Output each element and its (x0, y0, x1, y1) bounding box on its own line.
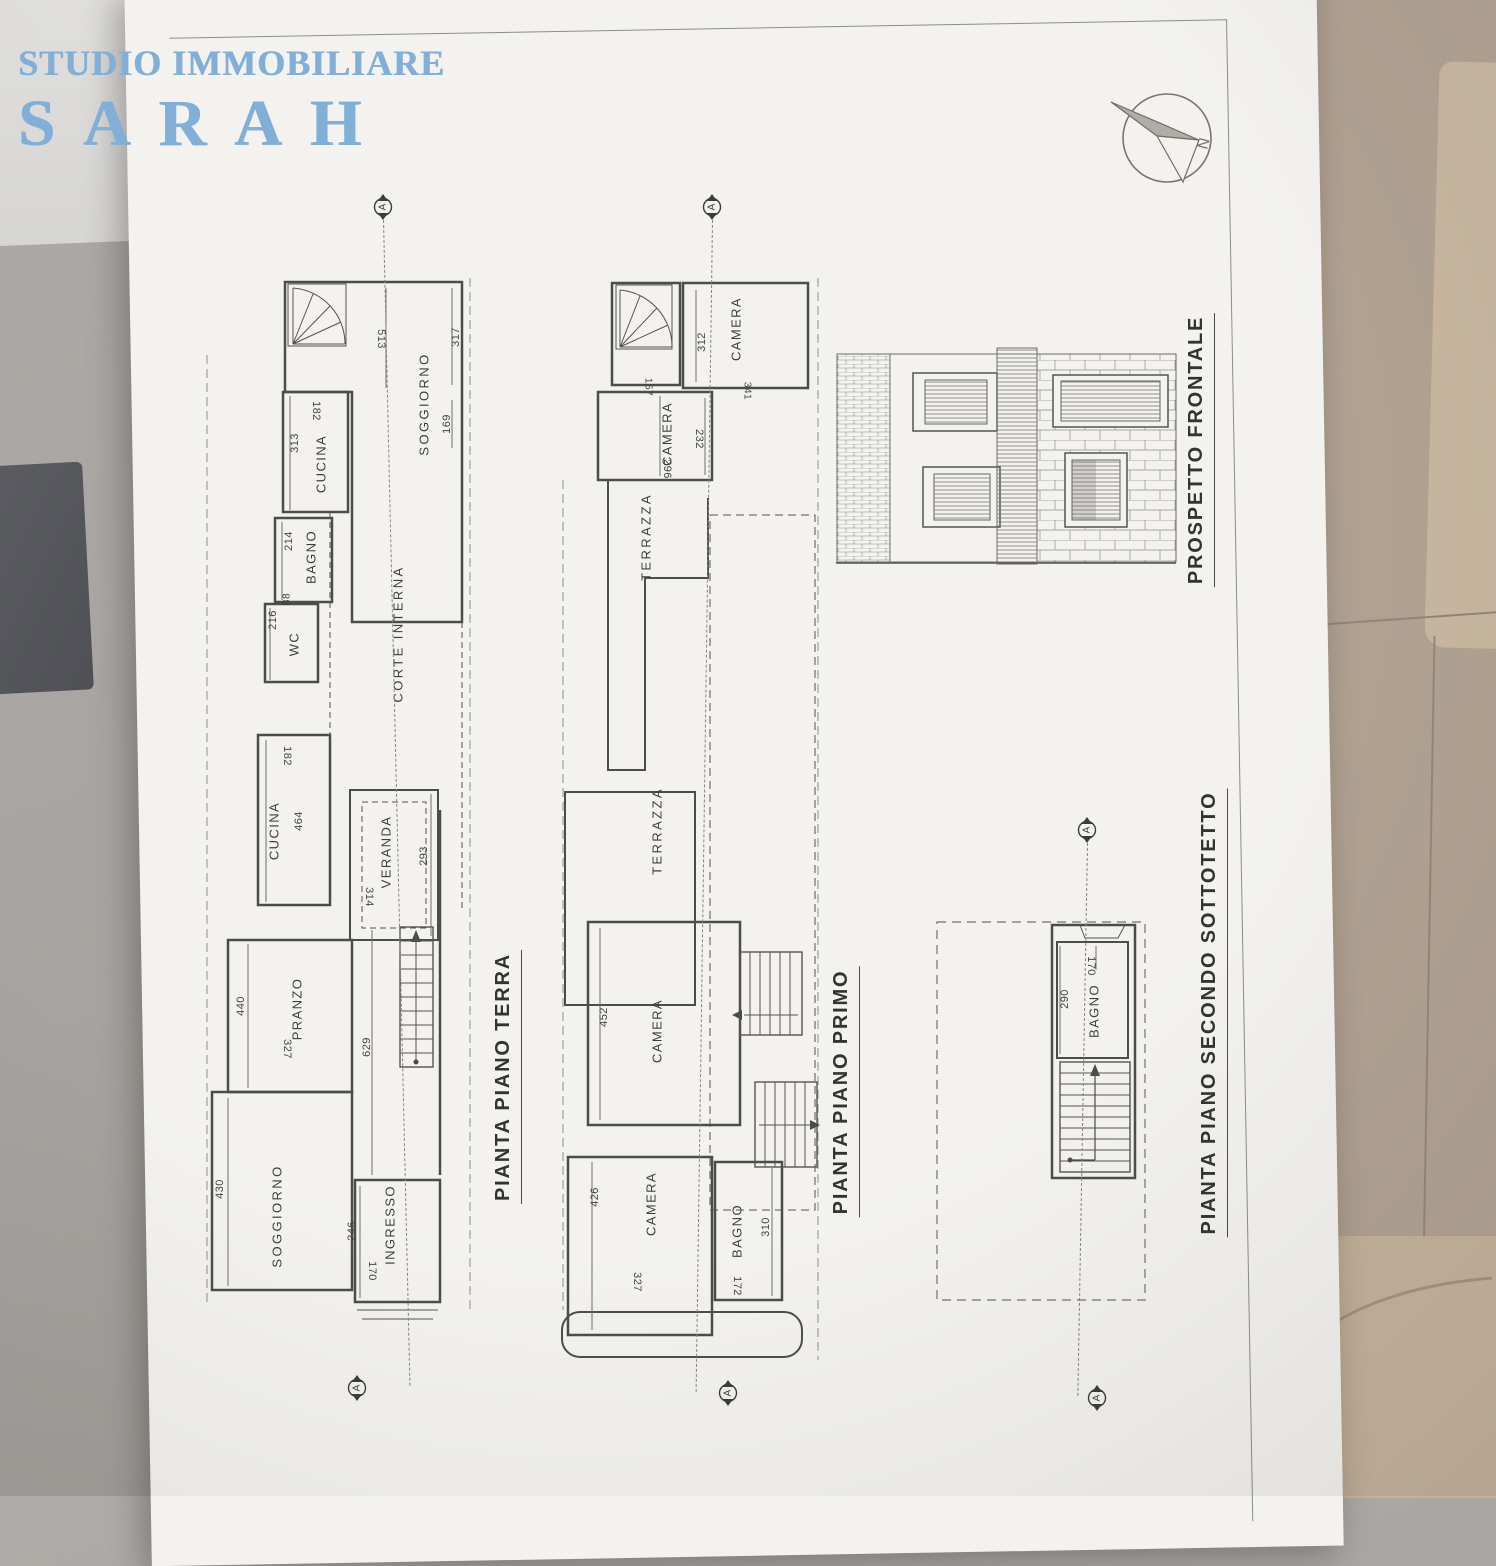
room-label-soggiorno-nord: SOGGIORNO (417, 352, 432, 455)
section-marker-sottotetto-bottom: A (1084, 1385, 1110, 1411)
svg-text:A: A (378, 203, 389, 210)
logo-line-sarah: SARAH (18, 86, 445, 162)
dimension-lines (592, 290, 772, 1330)
room-label-camera-b: CAMERA (660, 402, 675, 466)
dim-296: 296 (661, 459, 673, 479)
room-label-cucina-nord: CUCINA (314, 435, 329, 493)
room-label-pranzo: PRANZO (290, 978, 305, 1041)
section-marker-sottotetto-top: A (1074, 817, 1100, 843)
dim-314: 314 (363, 887, 375, 907)
svg-text:A: A (352, 1384, 363, 1391)
roof-neck (1080, 925, 1125, 938)
room-label-wc: WC (287, 632, 302, 656)
veranda-dashed-inner (362, 802, 426, 928)
room-label-soggiorno-sud: SOGGIORNO (270, 1164, 285, 1267)
terrazza-a-walls (608, 480, 708, 770)
dim-214: 214 (283, 531, 295, 551)
dim-232: 232 (693, 429, 705, 449)
plan-title-primo: PIANTA PIANO PRIMO (830, 967, 860, 1218)
plan-sottotetto-walls (920, 910, 1160, 1310)
room-label-bagno-terra: BAGNO (304, 530, 319, 584)
opening-1-louvers (1061, 381, 1160, 421)
dim-327-terra: 327 (281, 1039, 293, 1059)
room-label-bagno-sottotetto: BAGNO (1087, 984, 1102, 1038)
room-label-terrazza-b: TERRAZZA (650, 787, 665, 875)
dim-327-primo: 327 (631, 1272, 643, 1292)
entrance-steps (357, 1310, 438, 1319)
room-label-terrazza-a: TERRAZZA (639, 493, 654, 581)
camera-d-outline (568, 1157, 712, 1335)
stairs-spiral-icon (293, 288, 345, 344)
room-label-camera-d: CAMERA (644, 1172, 659, 1236)
property-lines (563, 278, 818, 1360)
room-label-camera-c: CAMERA (650, 999, 665, 1063)
dim-169: 169 (441, 414, 453, 434)
stairs-start-dot (414, 1060, 419, 1065)
dim-290: 290 (1059, 989, 1071, 1009)
svg-text:A: A (723, 1389, 734, 1396)
svg-text:A: A (1092, 1394, 1103, 1401)
plan-title-sottotetto: PIANTA PIANO SECONDO SOTTOTETTO (1198, 789, 1228, 1238)
dim-293: 293 (418, 846, 430, 866)
dim-313: 313 (289, 433, 301, 453)
dim-452: 452 (598, 1007, 610, 1027)
prospetto-frontale-drawing (830, 340, 1180, 570)
north-arrow-icon: N (1095, 80, 1245, 195)
stairs-start-dot (1068, 1158, 1073, 1163)
svg-text:A: A (1082, 826, 1093, 833)
dim-430: 430 (214, 1179, 226, 1199)
dim-312: 312 (696, 332, 708, 352)
section-marker-terra-top: A (370, 194, 396, 220)
pipe-band (997, 348, 1037, 564)
stairs-arrowhead (411, 930, 421, 942)
dim-216: 216 (267, 610, 279, 630)
room-label-bagno-primo: BAGNO (730, 1204, 745, 1258)
dim-426: 426 (589, 1187, 601, 1207)
window-2-shutters (934, 474, 990, 520)
svg-text:A: A (707, 203, 718, 210)
dim-464: 464 (293, 811, 305, 831)
roof-dashed-outline (710, 515, 815, 1210)
dim-88: 88 (282, 593, 293, 605)
stairs-arrowhead (1090, 1064, 1100, 1076)
terrazza-b-walls (565, 792, 695, 1005)
opening-2-shading (1072, 460, 1096, 520)
dim-172: 172 (731, 1276, 743, 1296)
dim-440: 440 (235, 996, 247, 1016)
dim-182-b: 182 (281, 746, 293, 766)
dim-317: 317 (450, 327, 462, 347)
logo-watermark: STUDIO IMMOBILIARE SARAH (18, 42, 445, 162)
plan-primo-walls (560, 270, 820, 1390)
plan-title-terra: PIANTA PIANO TERRA (492, 950, 522, 1204)
ingresso-outline (355, 1180, 440, 1302)
room-label-ingresso: INGRESSO (383, 1185, 398, 1265)
brick-band (837, 354, 890, 562)
room-label-cucina-sud: CUCINA (267, 802, 282, 860)
section-marker-terra-bottom: A (344, 1375, 370, 1401)
room-label-camera-a: CAMERA (729, 297, 744, 361)
dim-157: 157 (643, 378, 654, 396)
dim-170-terra: 170 (366, 1261, 378, 1281)
dim-170-sottotetto: 170 (1085, 956, 1097, 976)
room-label-veranda: VERANDA (379, 816, 394, 889)
stairs-a-arrowhead (732, 1010, 742, 1020)
logo-line-studio-immobiliare: STUDIO IMMOBILIARE (18, 42, 445, 84)
dim-310: 310 (760, 1217, 772, 1237)
stairs-spiral-icon (620, 290, 672, 347)
plan-title-prospetto: PROSPETTO FRONTALE (1185, 313, 1215, 587)
window-1-shutters (925, 380, 987, 424)
section-marker-primo-top: A (699, 194, 725, 220)
plan-terra-walls (200, 270, 480, 1320)
dim-246: 246 (346, 1221, 358, 1241)
stairs-treads (750, 952, 805, 1167)
dark-desk-object (0, 462, 94, 695)
dim-182-a: 182 (310, 401, 322, 421)
roof-dashed-outline (937, 922, 1145, 1300)
section-marker-primo-bottom: A (715, 1380, 741, 1406)
dim-341: 341 (742, 382, 753, 400)
dim-629: 629 (361, 1037, 373, 1057)
stairs-a-box (740, 952, 802, 1035)
